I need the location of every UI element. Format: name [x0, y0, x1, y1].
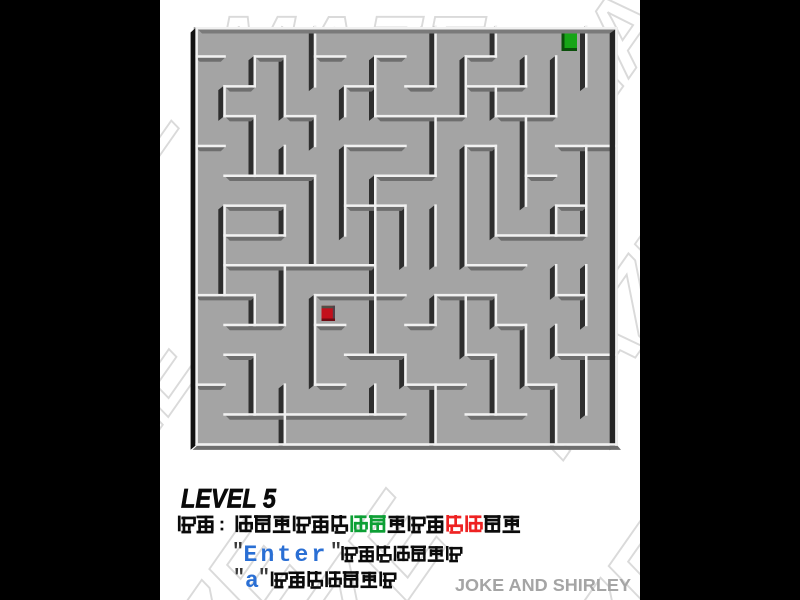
svg-text:LEVEL 5: LEVEL 5	[181, 483, 277, 513]
svg-text:a: a	[245, 568, 259, 594]
svg-text:": "	[232, 541, 244, 564]
svg-text:": "	[233, 567, 245, 590]
svg-text:": "	[258, 567, 270, 590]
svg-text:": "	[330, 541, 342, 564]
svg-text:JOKE AND SHIRLEY: JOKE AND SHIRLEY	[455, 575, 631, 595]
svg-text:Enter: Enter	[244, 542, 329, 568]
